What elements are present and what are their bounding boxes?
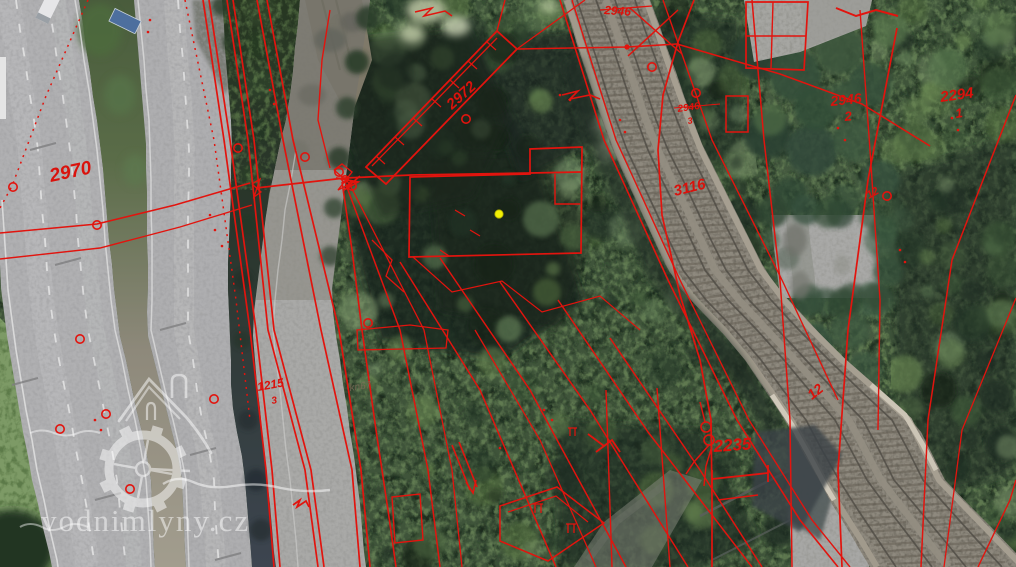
svg-text:2946: 2946 [829,90,863,109]
svg-text:2235: 2235 [712,434,753,456]
svg-text:vodnimlyny.cz: vodnimlyny.cz [41,503,250,538]
svg-text:2946: 2946 [603,3,632,19]
